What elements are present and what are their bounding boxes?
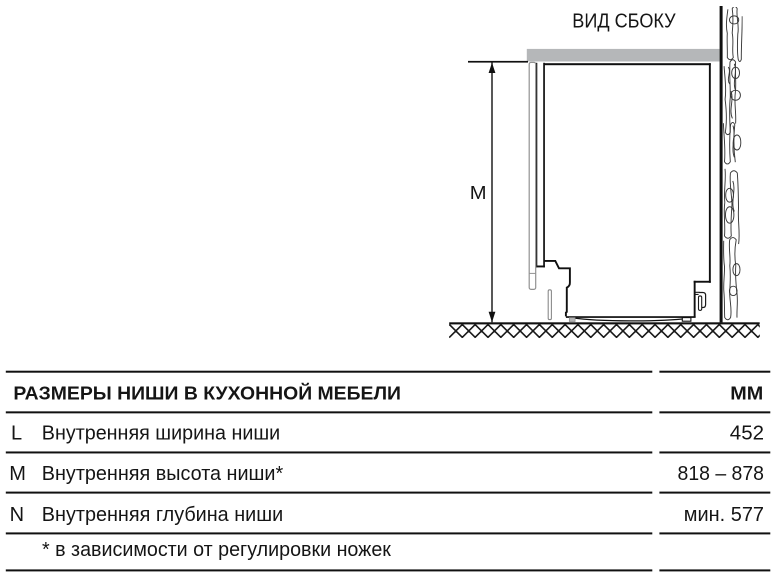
svg-text:452: 452 xyxy=(730,423,764,445)
svg-text:L: L xyxy=(11,423,22,445)
svg-text:М: М xyxy=(9,463,26,485)
svg-text:ММ: ММ xyxy=(730,382,763,403)
svg-text:N: N xyxy=(10,504,24,526)
svg-text:М: М xyxy=(470,183,487,203)
svg-text:Внутренняя глубина ниши: Внутренняя глубина ниши xyxy=(42,504,283,526)
svg-text:818 – 878: 818 – 878 xyxy=(678,463,765,485)
svg-text:РАЗМЕРЫ НИШИ В КУХОННОЙ МЕБЕЛИ: РАЗМЕРЫ НИШИ В КУХОННОЙ МЕБЕЛИ xyxy=(13,382,401,403)
svg-text:* в зависимости от регулировки: * в зависимости от регулировки ножек xyxy=(42,539,391,561)
svg-text:Внутренняя ширина ниши: Внутренняя ширина ниши xyxy=(42,423,280,445)
svg-text:ВИД СБОКУ: ВИД СБОКУ xyxy=(572,10,676,32)
svg-text:Внутренняя высота ниши*: Внутренняя высота ниши* xyxy=(42,463,284,485)
svg-text:мин. 577: мин. 577 xyxy=(684,504,764,526)
